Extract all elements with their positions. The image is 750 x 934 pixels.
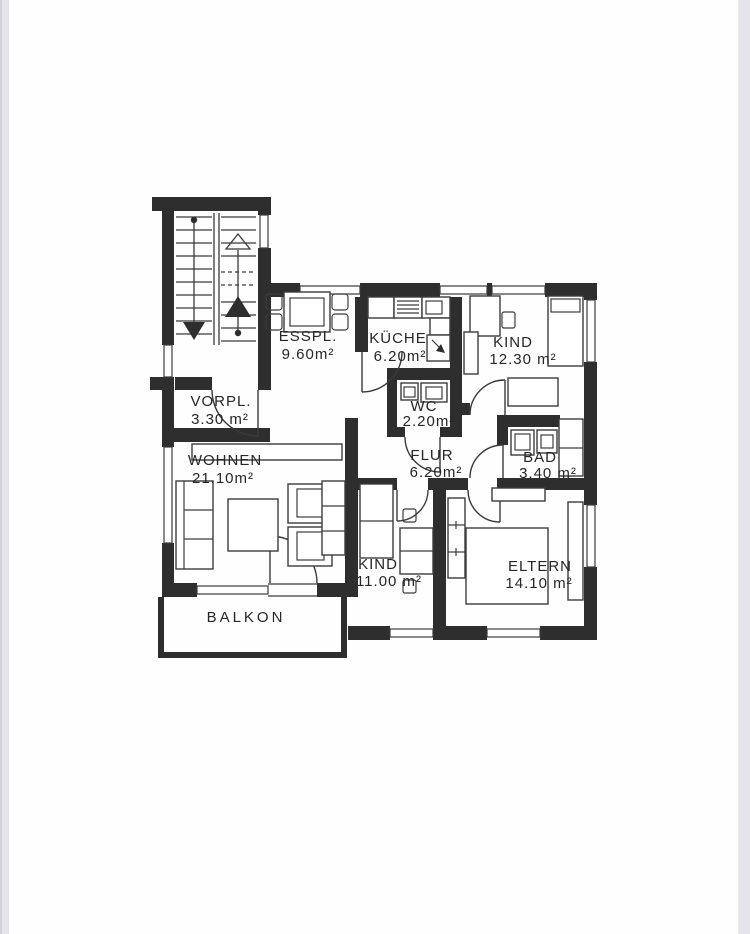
desk: [470, 296, 500, 336]
sofa: [176, 481, 213, 569]
room-name-flur: FLUR: [410, 447, 453, 464]
window-eltern-bottom: [487, 629, 540, 637]
window-wohnen-bottom: [197, 586, 268, 594]
room-area-kueche: 6.20m²: [374, 348, 427, 365]
window-kind2-bottom: [390, 629, 433, 637]
window-kind-top: [492, 286, 545, 294]
room-labels: ESSPL. 9.60m² KÜCHE 6.20m² KIND 12.30 m²…: [188, 328, 577, 626]
room-area-bad: 3.40 m²: [519, 465, 577, 482]
floorplan-svg: ESSPL. 9.60m² KÜCHE 6.20m² KIND 12.30 m²…: [0, 0, 750, 934]
window-stairwell: [260, 215, 268, 248]
furniture-esspl: [266, 292, 348, 332]
room-area-esspl: 9.60m²: [282, 346, 335, 363]
scanned-floorplan-page: ESSPL. 9.60m² KÜCHE 6.20m² KIND 12.30 m²…: [0, 0, 750, 934]
stove: [394, 297, 422, 318]
room-name-esspl: ESSPL.: [279, 328, 338, 345]
room-name-kind-top: KIND: [493, 334, 533, 351]
balcony-label: BALKON: [207, 609, 286, 626]
door-kind-top: [470, 380, 505, 415]
wardrobe: [448, 498, 465, 578]
room-area-vorpl: 3.30 m²: [191, 411, 249, 428]
chair: [502, 312, 515, 328]
room-name-eltern: ELTERN: [508, 558, 572, 575]
coffee-table: [228, 499, 278, 551]
window-kueche: [440, 286, 487, 294]
room-area-kind-top: 12.30 m²: [489, 351, 556, 368]
room-area-wohnen: 21.10m²: [192, 470, 254, 487]
room-area-eltern: 14.10 m²: [505, 575, 572, 592]
door-bad: [470, 445, 503, 478]
room-area-flur: 6.20m²: [410, 464, 463, 481]
room-name-bad: BAD: [523, 449, 557, 466]
staircase: [176, 213, 256, 345]
window-left-upper: [164, 345, 172, 377]
window-eltern-right: [587, 505, 595, 567]
shelf: [322, 481, 345, 555]
window-kind-right: [587, 300, 595, 362]
room-name-vorpl: VORPL.: [190, 393, 251, 410]
window-wohnen-left: [164, 447, 172, 543]
room-area-wc: 2.20m²: [403, 413, 456, 430]
room-name-kind2: KIND: [358, 556, 398, 573]
room-area-kind2: 11.00 m²: [356, 573, 422, 590]
room-name-wohnen: WOHNEN: [188, 452, 262, 469]
door-kind2: [397, 490, 428, 521]
room-name-kueche: KÜCHE: [369, 329, 427, 347]
